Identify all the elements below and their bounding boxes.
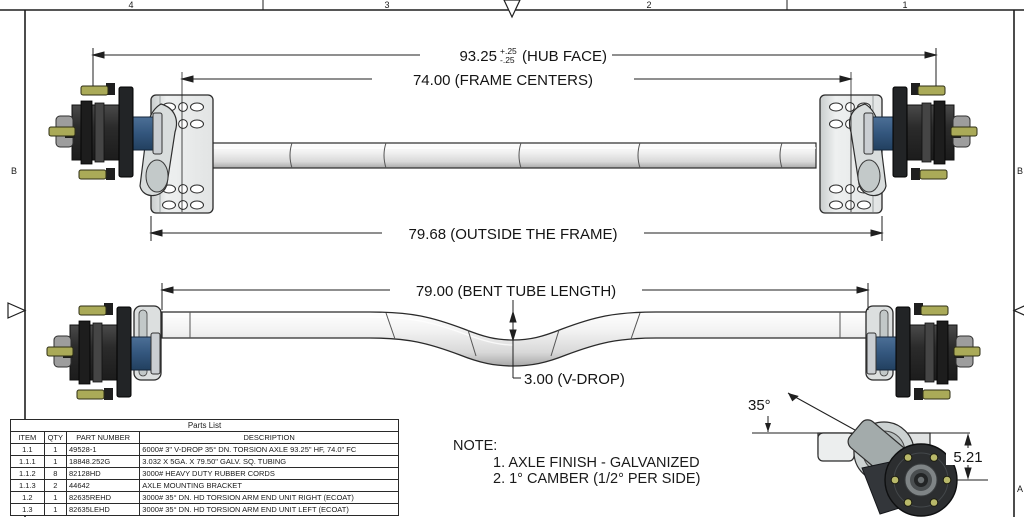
cell-description: AXLE MOUNTING BRACKET bbox=[140, 480, 399, 492]
table-row: 1.2 1 82635REHD 3000# 35° DN. HD TORSION… bbox=[11, 492, 399, 504]
zone-top-3: 3 bbox=[384, 0, 389, 10]
cell-description: 6000# 3" V-DROP 35° DN. TORSION AXLE 93.… bbox=[140, 444, 399, 456]
table-row: 1.1.2 8 82128HD 3000# HEAVY DUTY RUBBER … bbox=[11, 468, 399, 480]
cell-description: 3.032 X 5GA. X 79.50" GALV. SQ. TUBING bbox=[140, 456, 399, 468]
dim-hub-face-tol-minus: -.25 bbox=[500, 55, 515, 65]
zone-right-b: B bbox=[1017, 166, 1023, 176]
cell-part-number: 82635REHD bbox=[66, 492, 139, 504]
cell-part-number: 49528-1 bbox=[66, 444, 139, 456]
table-row: 1.1.1 1 18848.252G 3.032 X 5GA. X 79.50"… bbox=[11, 456, 399, 468]
cell-item: 1.2 bbox=[11, 492, 45, 504]
axle-tube bbox=[208, 143, 816, 168]
table-row: 1.1.3 2 44642 AXLE MOUNTING BRACKET bbox=[11, 480, 399, 492]
cell-description: 3000# 35° DN. HD TORSION ARM END UNIT RI… bbox=[140, 492, 399, 504]
dim-frame-centers: 74.00 (FRAME CENTERS) bbox=[413, 72, 593, 89]
cell-qty: 1 bbox=[44, 504, 66, 516]
cell-item: 1.1.1 bbox=[11, 456, 45, 468]
cell-qty: 1 bbox=[44, 444, 66, 456]
cell-qty: 2 bbox=[44, 480, 66, 492]
cell-qty: 8 bbox=[44, 468, 66, 480]
zone-top-1: 1 bbox=[902, 0, 907, 10]
col-header-item: ITEM bbox=[11, 432, 45, 444]
table-row: 1.3 1 82635LEHD 3000# 35° DN. HD TORSION… bbox=[11, 504, 399, 516]
top-view-axle bbox=[49, 83, 977, 213]
datum-triangle-left-icon bbox=[8, 303, 25, 318]
cell-item: 1.1 bbox=[11, 444, 45, 456]
cell-part-number: 18848.252G bbox=[66, 456, 139, 468]
dim-arm-angle: 35° bbox=[748, 397, 771, 414]
notes-block: NOTE: 1. AXLE FINISH - GALVANIZED 2. 1° … bbox=[453, 438, 700, 487]
dim-drop-height: 5.21 bbox=[953, 449, 982, 466]
notes-heading: NOTE: bbox=[453, 438, 700, 454]
parts-list-title: Parts List bbox=[11, 420, 399, 432]
cell-part-number: 82635LEHD bbox=[66, 504, 139, 516]
col-header-part-number: PART NUMBER bbox=[66, 432, 139, 444]
cell-description: 3000# HEAVY DUTY RUBBER CORDS bbox=[140, 468, 399, 480]
dim-hub-face-label: (HUB FACE) bbox=[522, 48, 607, 65]
note-item-1: 1. AXLE FINISH - GALVANIZED bbox=[493, 455, 700, 471]
detail-side-view: 35° bbox=[748, 393, 990, 516]
col-header-qty: QTY bbox=[44, 432, 66, 444]
dim-bent-tube: 79.00 (BENT TUBE LENGTH) bbox=[416, 283, 616, 300]
datum-triangle-right-icon bbox=[1014, 303, 1024, 318]
cell-description: 3000# 35° DN. HD TORSION ARM END UNIT LE… bbox=[140, 504, 399, 516]
zone-top-4: 4 bbox=[128, 0, 133, 10]
cell-part-number: 82128HD bbox=[66, 468, 139, 480]
cell-item: 1.1.2 bbox=[11, 468, 45, 480]
engineering-drawing: 4 3 2 1 B A B A bbox=[0, 0, 1024, 517]
cell-item: 1.3 bbox=[11, 504, 45, 516]
zone-left-b: B bbox=[11, 166, 17, 176]
table-row: 1.1 1 49528-1 6000# 3" V-DROP 35° DN. TO… bbox=[11, 444, 399, 456]
zone-right-a: A bbox=[1017, 484, 1023, 494]
datum-triangle-top-icon bbox=[504, 0, 520, 17]
parts-list-table: Parts List ITEM QTY PART NUMBER DESCRIPT… bbox=[10, 419, 399, 516]
cell-qty: 1 bbox=[44, 456, 66, 468]
dim-outside-frame: 79.68 (OUTSIDE THE FRAME) bbox=[409, 226, 618, 243]
col-header-description: DESCRIPTION bbox=[140, 432, 399, 444]
cell-item: 1.1.3 bbox=[11, 480, 45, 492]
zone-top-2: 2 bbox=[646, 0, 651, 10]
dim-v-drop: 3.00 (V-DROP) bbox=[524, 371, 625, 388]
cell-part-number: 44642 bbox=[66, 480, 139, 492]
note-item-2: 2. 1° CAMBER (1/2° PER SIDE) bbox=[493, 471, 700, 487]
dim-hub-face-value: 93.25 bbox=[459, 48, 497, 65]
cell-qty: 1 bbox=[44, 492, 66, 504]
